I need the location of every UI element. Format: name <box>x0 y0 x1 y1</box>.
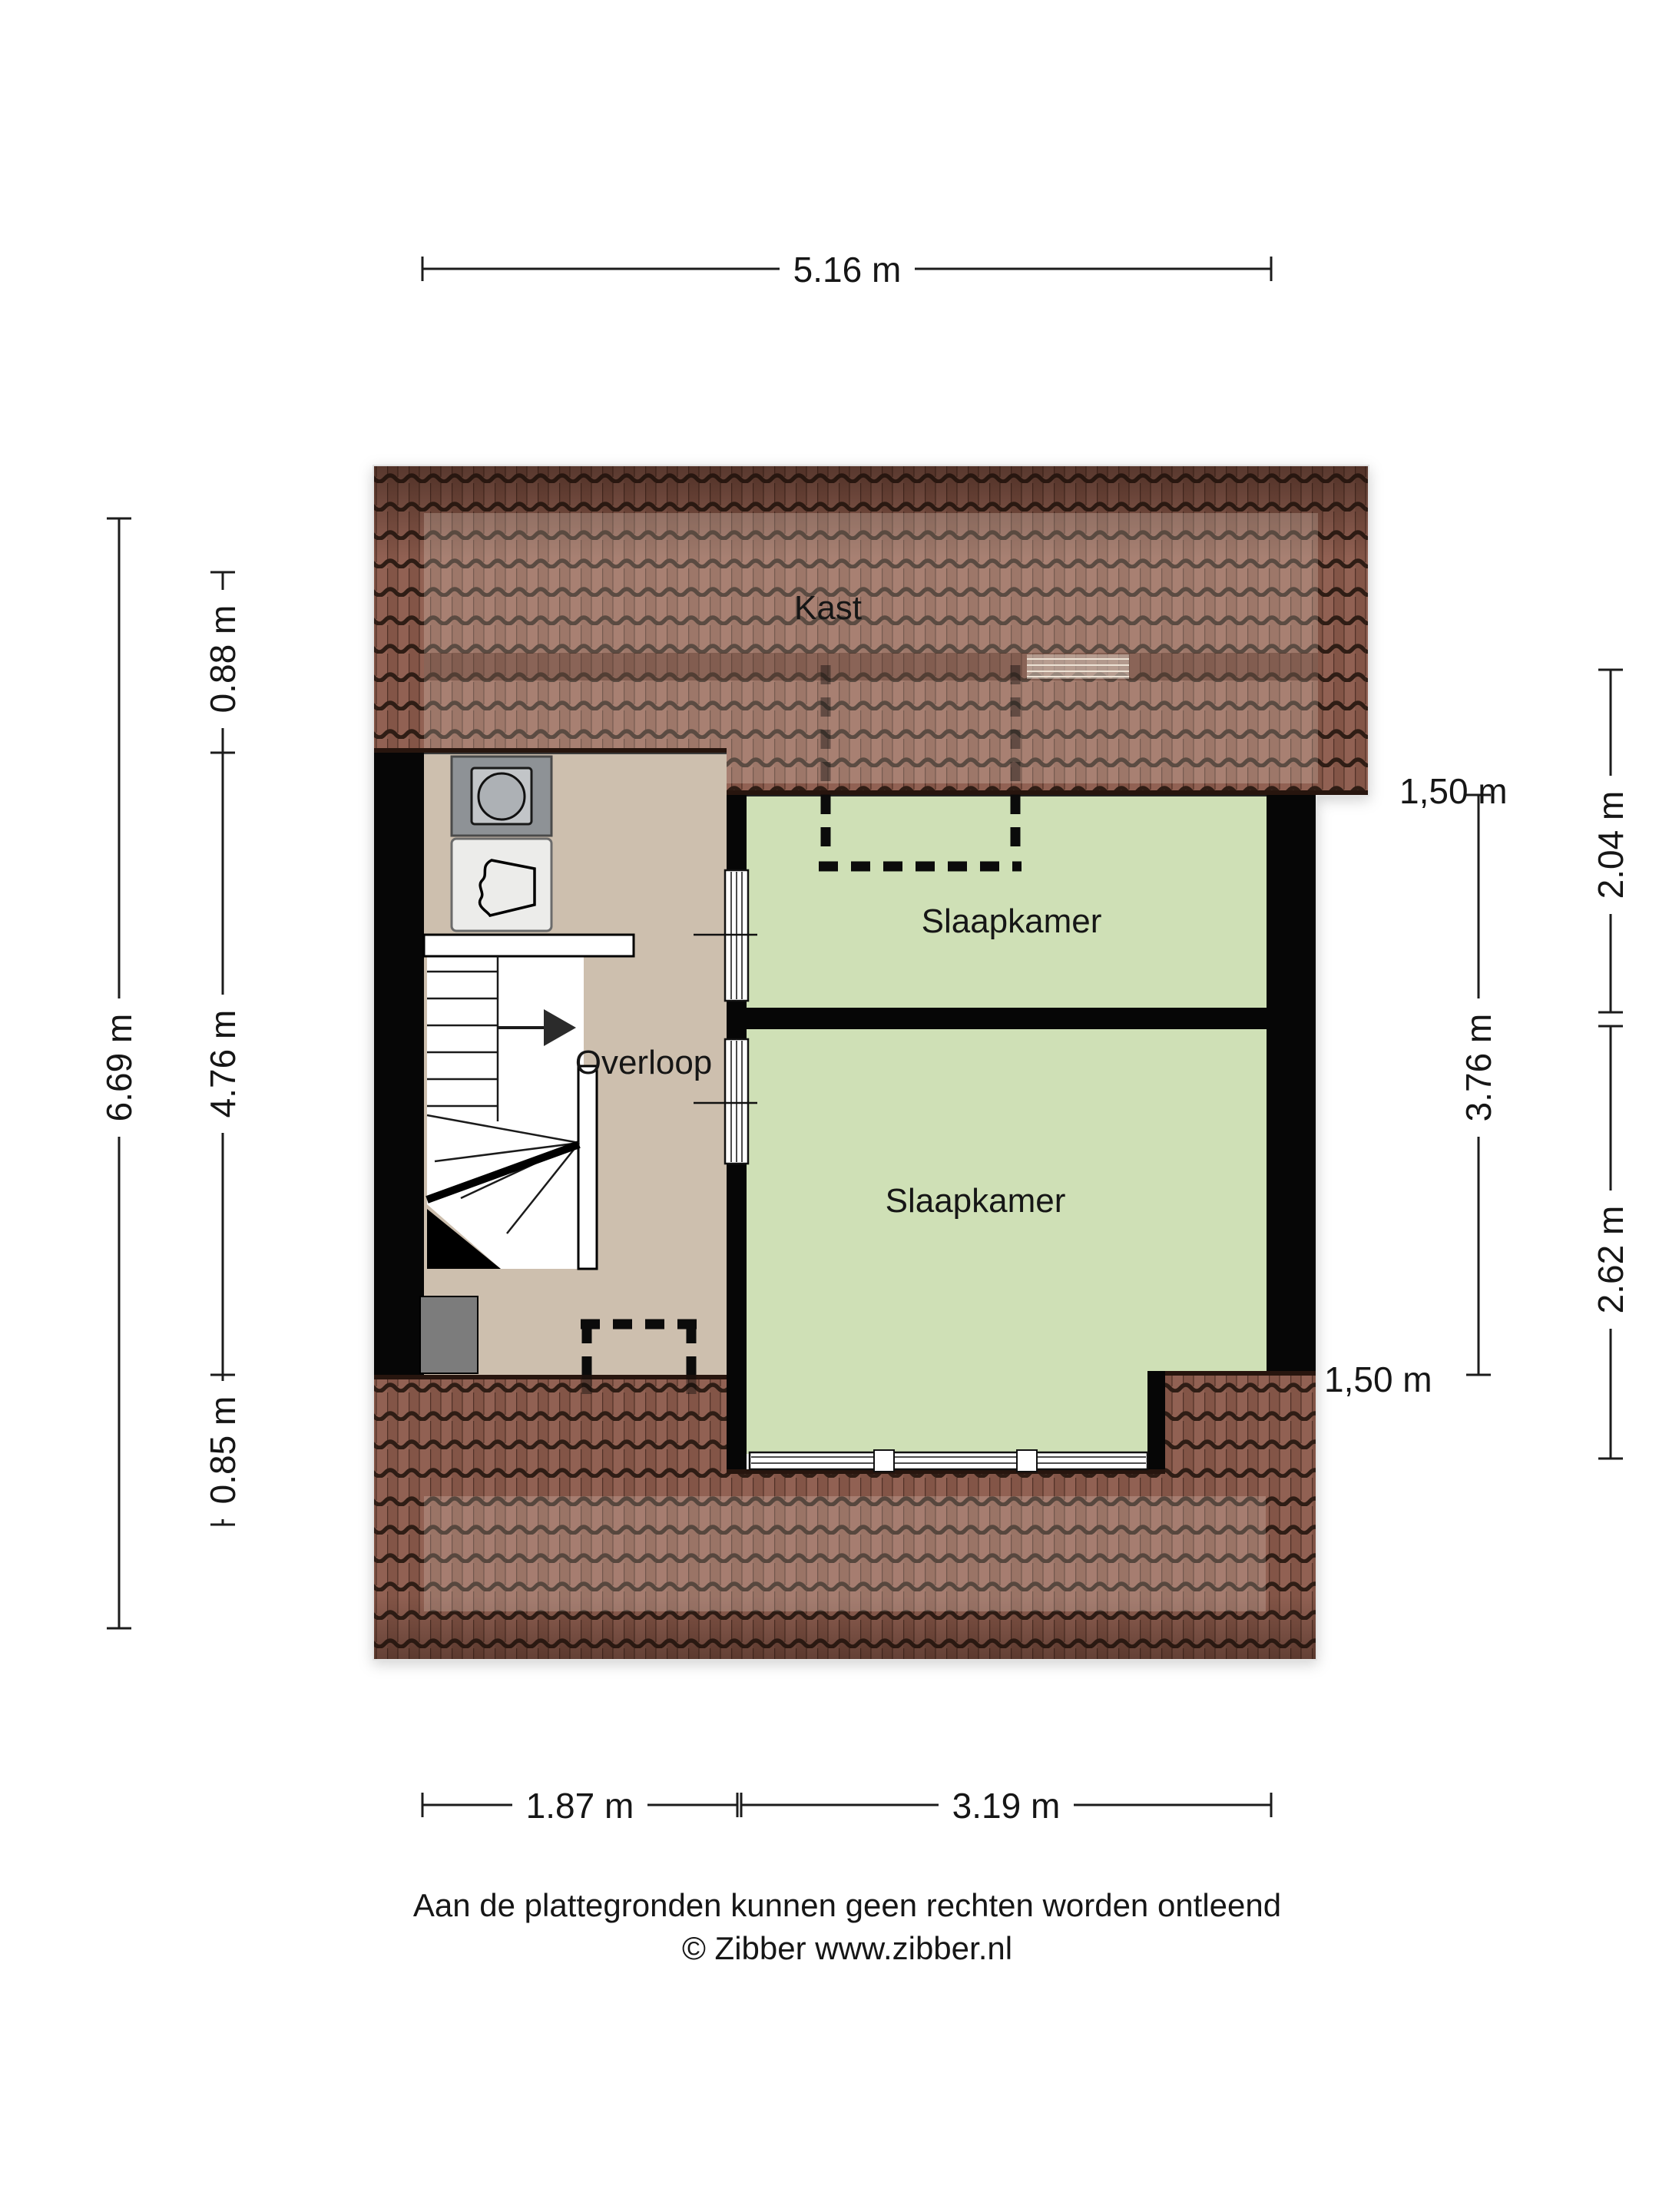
dim-right-inner: 3.76 m <box>1457 795 1500 1375</box>
room-label-kast: Kast <box>794 589 862 627</box>
headroom-label-top: 1,50 m <box>1399 771 1508 811</box>
svg-text:4.76 m: 4.76 m <box>203 1010 243 1118</box>
wall-notch <box>1147 1371 1165 1469</box>
svg-text:5.16 m: 5.16 m <box>793 250 902 290</box>
kast-floor-overlay <box>424 513 1318 783</box>
dim-bottom-segment-2: 3.19 m <box>741 1782 1271 1828</box>
dim-right-segment-2: 2.62 m <box>1589 1026 1632 1459</box>
floorplan-canvas: Kast Slaapkamer Slaapkamer Overloop 5.16… <box>0 0 1659 2212</box>
chimney <box>420 1296 478 1373</box>
laundry-basket-icon <box>452 839 551 931</box>
roof-top <box>374 466 1368 795</box>
footer-credit: © Zibber www.zibber.nl <box>682 1930 1012 1966</box>
room-label-overloop: Overloop <box>575 1044 713 1081</box>
knee-wall-band <box>424 653 1318 680</box>
svg-text:3.19 m: 3.19 m <box>952 1786 1061 1826</box>
footer-disclaimer: Aan de plattegronden kunnen geen rechten… <box>413 1887 1281 1923</box>
room-bedroom-top-floor <box>747 795 1267 1008</box>
headroom-label-bottom: 1,50 m <box>1324 1359 1432 1399</box>
dim-left-segment-1: 0.88 m <box>201 572 244 753</box>
roof-window <box>1027 654 1129 679</box>
svg-text:3.76 m: 3.76 m <box>1459 1014 1498 1122</box>
wall-right <box>1267 795 1316 1371</box>
svg-text:1.87 m: 1.87 m <box>526 1786 634 1826</box>
dim-top-width: 5.16 m <box>422 246 1271 292</box>
washing-machine-icon <box>452 757 551 836</box>
stair-railing-right <box>578 1066 597 1269</box>
svg-text:2.62 m: 2.62 m <box>1591 1206 1631 1314</box>
window-bedroom-bottom <box>750 1450 1147 1472</box>
svg-text:6.69 m: 6.69 m <box>99 1014 139 1122</box>
svg-text:2.04 m: 2.04 m <box>1591 791 1631 899</box>
svg-text:0.88 m: 0.88 m <box>203 605 243 714</box>
dim-left-segment-3: 0.85 m <box>201 1375 244 1525</box>
room-label-bedroom-top: Slaapkamer <box>922 902 1102 940</box>
wall-left <box>374 753 424 1375</box>
floorplan-page: Kast Slaapkamer Slaapkamer Overloop 5.16… <box>0 0 1659 2212</box>
stair-railing-top <box>424 935 634 956</box>
room-label-bedroom-bottom: Slaapkamer <box>886 1182 1066 1220</box>
dim-left-segment-2: 4.76 m <box>201 753 244 1375</box>
dim-right-segment-1: 2.04 m <box>1589 670 1632 1012</box>
svg-text:0.85 m: 0.85 m <box>203 1396 243 1505</box>
dim-bottom-segment-1: 1.87 m <box>422 1782 737 1828</box>
roof-bottom-floor-overlay <box>424 1496 1266 1611</box>
wall-divider <box>747 1008 1316 1029</box>
dim-left-total: 6.69 m <box>98 518 141 1628</box>
